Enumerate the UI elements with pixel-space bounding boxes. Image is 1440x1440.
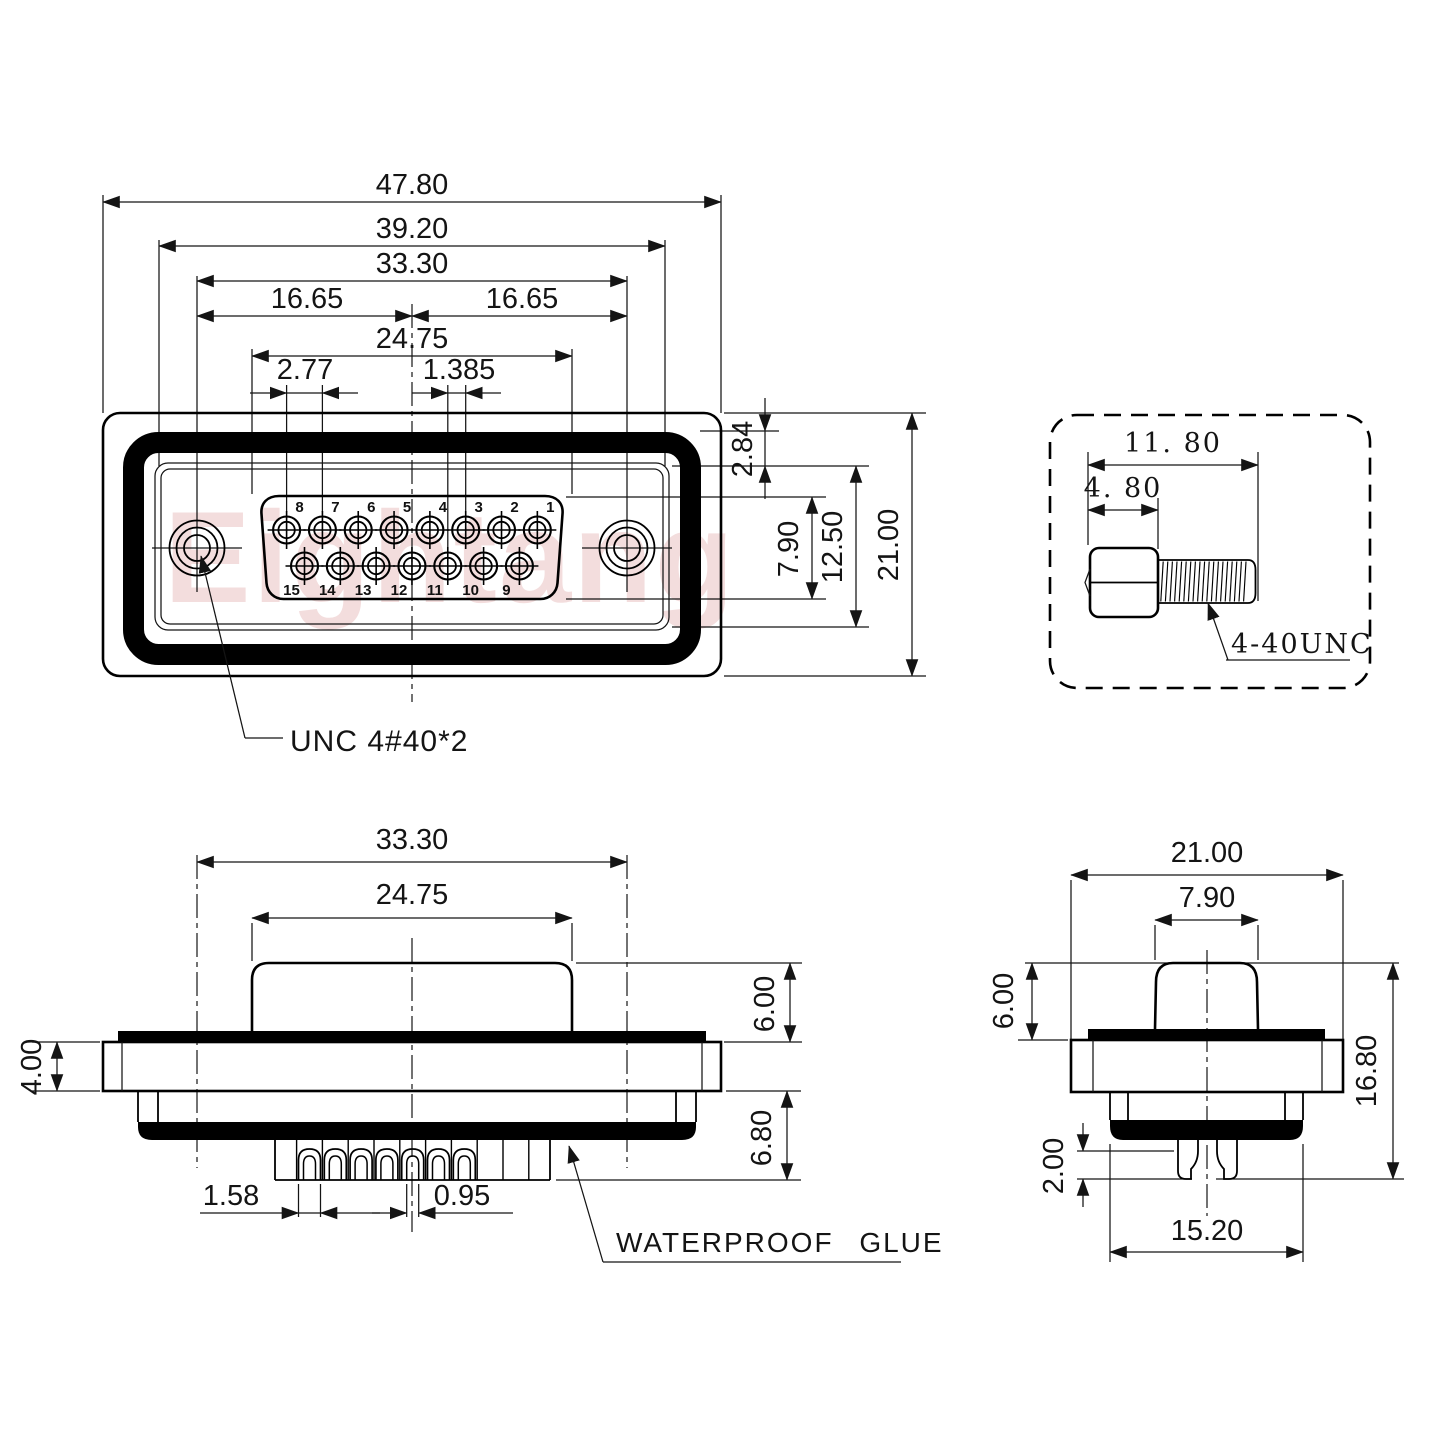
end-gasket-bottom	[1110, 1120, 1303, 1140]
end-dimension-lines	[1032, 875, 1393, 1252]
dim-side-flange-thickness: 4.00	[16, 1039, 48, 1095]
dim-side-shell-height: 6.00	[749, 976, 781, 1032]
pin-number: 4	[439, 499, 448, 516]
pin-number: 9	[502, 582, 510, 599]
dim-end-pin-depth: 2.00	[1038, 1138, 1070, 1194]
dim-end-shell-width: 7.90	[1179, 882, 1235, 914]
dim-screw-total-length: 11. 80	[1124, 428, 1222, 459]
dim-front-total-height: 21.00	[873, 509, 905, 582]
drawing-page: Eightang	[0, 0, 1440, 1440]
watermark-text: Eightang	[164, 484, 736, 630]
dim-side-slot-width: 0.95	[434, 1180, 490, 1212]
thread-callout: 4-40UNC	[1208, 603, 1373, 660]
jack-screw	[1085, 548, 1256, 617]
pin-number: 11	[427, 582, 443, 599]
end-extension-lines	[1018, 880, 1404, 1262]
dim-front-insert-width: 24.75	[376, 323, 449, 355]
dim-end-total-height: 16.80	[1351, 1035, 1383, 1108]
dim-front-opening-height: 7.90	[773, 521, 805, 577]
dim-front-half-span-left: 16.65	[271, 283, 344, 315]
pin-number: 12	[391, 582, 408, 599]
pin-number: 3	[475, 499, 483, 516]
side-gasket-top	[118, 1031, 706, 1042]
screw-threads	[1161, 562, 1246, 602]
dim-end-flange-width: 21.00	[1171, 837, 1244, 869]
pin-number: 15	[283, 582, 300, 599]
thread-spec-label: 4-40UNC	[1231, 629, 1373, 660]
pin-number: 2	[510, 499, 518, 516]
waterproof-glue-label: WATERPROOF GLUE	[616, 1227, 944, 1258]
dim-side-shell-width: 24.75	[376, 879, 449, 911]
dim-front-half-pitch: 1.385	[423, 354, 496, 386]
dim-front-offset: 2.84	[727, 421, 759, 477]
pin-number: 7	[331, 499, 339, 516]
screw-thread-label: UNC 4#40*2	[290, 725, 468, 758]
dim-side-rear-height: 6.80	[746, 1110, 778, 1166]
technical-drawing: Eightang	[0, 0, 1440, 1440]
pin-number: 1	[546, 499, 554, 516]
dim-screw-head-length: 4. 80	[1084, 473, 1163, 504]
dim-front-pin-pitch: 2.77	[277, 354, 333, 386]
dim-side-screw-span: 33.30	[376, 824, 449, 856]
pin-number: 10	[462, 582, 479, 599]
pin-number: 6	[367, 499, 375, 516]
side-extension-lines	[32, 923, 802, 1217]
front-view: 47.80 39.20 33.30 16.65 16.65 24.75 2.77…	[103, 169, 926, 758]
pin-number: 5	[403, 499, 411, 516]
pin-number: 14	[319, 582, 336, 599]
end-view: 21.00 7.90 6.00 16.80 2.00 15.20	[988, 837, 1404, 1262]
side-gasket-bottom	[138, 1122, 696, 1140]
end-gasket-top	[1088, 1029, 1325, 1040]
pin-number: 8	[295, 499, 303, 516]
dim-end-shell-height: 6.00	[988, 973, 1020, 1029]
dim-front-half-span-right: 16.65	[486, 283, 559, 315]
dim-front-width-39: 39.20	[376, 213, 449, 245]
dim-side-cup-width: 1.58	[203, 1180, 259, 1212]
dim-end-body-width: 15.20	[1171, 1215, 1244, 1247]
dim-front-screw-span: 33.30	[376, 248, 449, 280]
dim-front-insert-height: 12.50	[817, 511, 849, 584]
pin-number: 13	[355, 582, 372, 599]
screw-detail-view: 11. 80 4. 80 4-40UNC	[1050, 415, 1373, 688]
side-view: 33.30 24.75 6.00 4.00 6.80 1.58 0.95	[16, 824, 944, 1262]
solder-cups	[297, 1140, 529, 1180]
dim-front-total-width: 47.80	[376, 169, 449, 201]
